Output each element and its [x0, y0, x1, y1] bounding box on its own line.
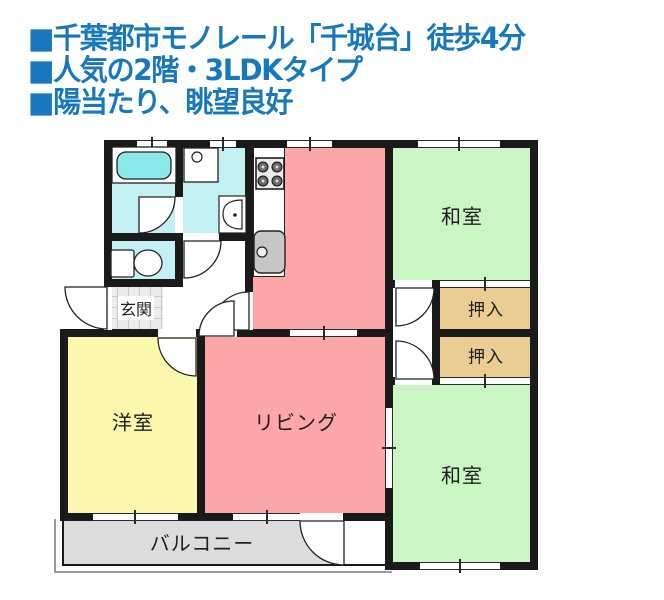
label-balcony: バルコニー	[150, 528, 255, 557]
label-youshitsu: 洋室	[112, 407, 154, 436]
balcony-door-arc	[300, 521, 344, 565]
toilet-icon	[111, 250, 162, 277]
label-living: リビング	[254, 407, 338, 436]
fixtures-and-doors-layer	[0, 0, 664, 600]
gas-stove-icon	[256, 158, 284, 189]
vanity-sink-icon	[219, 196, 246, 233]
label-washitsu-top: 和室	[441, 201, 483, 230]
youshitsu-door-arc	[158, 338, 196, 376]
hallway-top-door-arc	[396, 288, 434, 326]
entry-door-arc	[65, 287, 107, 329]
label-oshiire-top: 押入	[468, 296, 504, 321]
bathroom-door-arc	[139, 197, 175, 233]
bathtub-icon	[112, 147, 176, 183]
label-oshiire-bottom: 押入	[468, 343, 504, 368]
floor-plan-advertisement: ■千葉都市モノレール「千城台」徒歩4分 ■人気の2階・3LDKタイプ ■陽当たり…	[0, 0, 664, 600]
label-washitsu-bottom: 和室	[441, 460, 483, 489]
kitchen-sink-icon	[254, 231, 285, 273]
living-door-arc	[199, 301, 234, 336]
hallway-bottom-door-arc	[396, 341, 434, 379]
label-genkan: 玄関	[118, 296, 154, 320]
washing-machine-icon	[184, 148, 218, 182]
washroom-door-arc	[184, 241, 221, 278]
